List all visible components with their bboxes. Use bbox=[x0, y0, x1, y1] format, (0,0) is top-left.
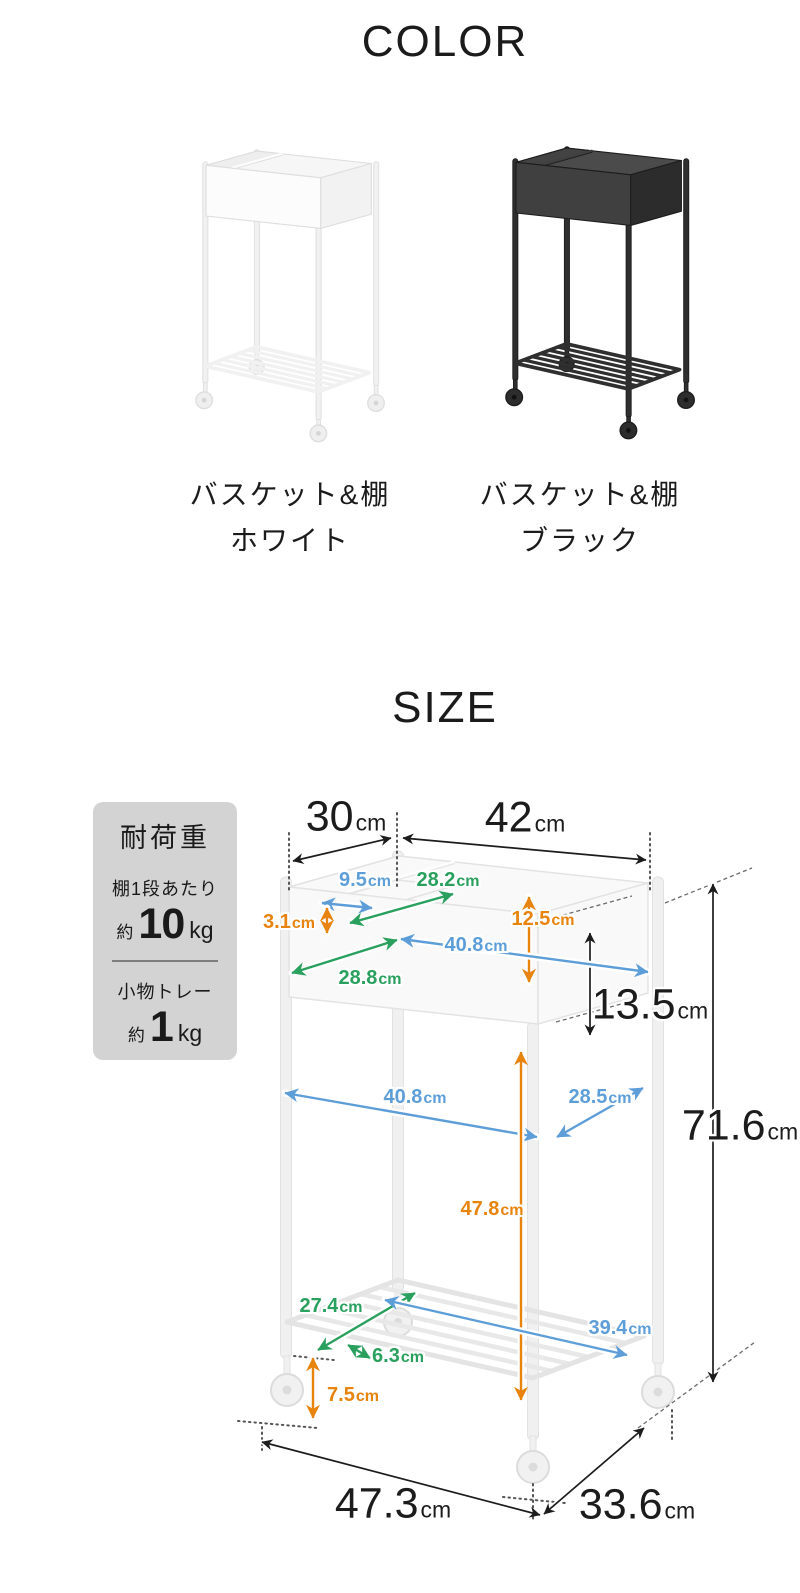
dim-basket-inner-height: 12.5cm bbox=[511, 909, 574, 929]
load-capacity-title: 耐荷重 bbox=[93, 816, 237, 855]
cart-illustration-white bbox=[188, 146, 400, 450]
dim-top-width: 42cm bbox=[485, 797, 566, 840]
dim-under-basket-height: 47.8cm bbox=[460, 1199, 523, 1219]
dim-shelf-depth: 27.4cm bbox=[299, 1296, 362, 1316]
dim-tray-height: 3.1cm bbox=[263, 912, 315, 932]
load-capacity-shelf-label: 棚1段あたり bbox=[93, 875, 237, 901]
variant-black-color: ブラック bbox=[440, 524, 720, 558]
variant-white-name: バスケット&棚 bbox=[150, 478, 430, 512]
load-capacity-box: 耐荷重 棚1段あたり 約 10 kg 小物トレー 約 1 kg bbox=[93, 802, 237, 1060]
size-diagram: 耐荷重 棚1段あたり 約 10 kg 小物トレー 約 1 kg 30cm 42c… bbox=[0, 770, 800, 1593]
dim-base-width: 47.3cm bbox=[335, 1483, 451, 1526]
load-capacity-tray-value: 約 1 kg bbox=[93, 1006, 237, 1049]
load-capacity-divider bbox=[112, 960, 218, 962]
variant-white-color: ホワイト bbox=[150, 524, 430, 558]
dim-leg-span-width: 40.8cm bbox=[383, 1087, 446, 1107]
dim-top-depth: 30cm bbox=[306, 796, 387, 839]
cart-illustration-black bbox=[498, 143, 710, 447]
load-capacity-shelf-value: 約 10 kg bbox=[93, 903, 237, 946]
dim-total-height: 71.6cm bbox=[682, 1105, 798, 1148]
cart-black-art bbox=[506, 147, 694, 439]
size-section-title: SIZE bbox=[0, 686, 800, 730]
variant-black-name: バスケット&棚 bbox=[440, 478, 720, 512]
dim-shelf-bar-pitch: 6.3cm bbox=[372, 1346, 424, 1366]
dim-basket-height: 13.5cm bbox=[592, 984, 708, 1027]
product-spec-image: COLOR bbox=[0, 0, 800, 1593]
dim-leg-span-depth: 28.5cm bbox=[568, 1087, 631, 1107]
dim-shelf-width: 39.4cm bbox=[588, 1318, 651, 1338]
cart-white-art bbox=[196, 150, 384, 442]
dim-base-depth: 33.6cm bbox=[579, 1484, 695, 1527]
dim-basket-inner-depth: 28.2cm bbox=[416, 870, 479, 890]
dim-basket-inner-width: 40.8cm bbox=[444, 935, 507, 955]
color-section-title: COLOR bbox=[0, 20, 800, 64]
dim-caster-height: 7.5cm bbox=[327, 1385, 379, 1405]
load-capacity-tray-label: 小物トレー bbox=[93, 978, 237, 1004]
dim-basket-outer-depth: 28.8cm bbox=[338, 968, 401, 988]
dim-tray-width: 9.5cm bbox=[339, 870, 391, 890]
